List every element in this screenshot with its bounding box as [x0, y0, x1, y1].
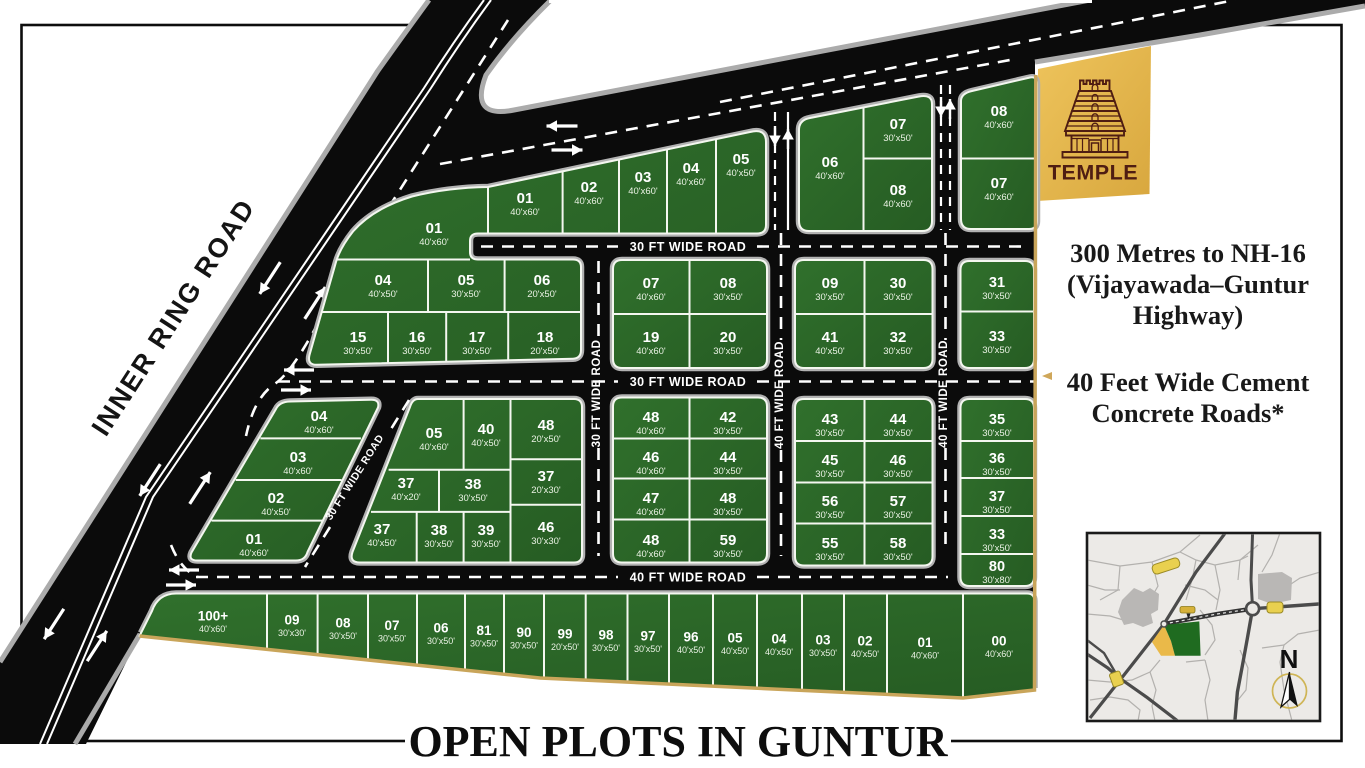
svg-text:58: 58 — [890, 535, 907, 552]
svg-text:08: 08 — [991, 103, 1008, 120]
svg-text:20'x50': 20'x50' — [551, 642, 579, 652]
svg-text:40'x50': 40'x50' — [367, 538, 397, 549]
svg-text:07: 07 — [643, 275, 660, 292]
svg-text:03: 03 — [290, 449, 307, 466]
svg-text:30'x50': 30'x50' — [982, 428, 1012, 439]
svg-text:30'x50': 30'x50' — [343, 346, 373, 357]
svg-text:20'x30': 20'x30' — [531, 485, 561, 496]
svg-text:35: 35 — [989, 412, 1005, 428]
svg-text:30'x50': 30'x50' — [378, 633, 406, 643]
svg-text:38: 38 — [465, 476, 482, 493]
svg-text:40'x60': 40'x60' — [883, 199, 913, 210]
svg-text:30'x50': 30'x50' — [982, 345, 1012, 356]
svg-text:09: 09 — [822, 275, 839, 292]
svg-text:30'x50': 30'x50' — [809, 648, 837, 658]
svg-text:40'x60': 40'x60' — [636, 426, 666, 437]
svg-text:02: 02 — [857, 633, 872, 648]
svg-text:01: 01 — [517, 190, 534, 207]
svg-text:04: 04 — [311, 408, 328, 425]
svg-text:15: 15 — [350, 329, 367, 346]
svg-text:30'x50': 30'x50' — [815, 428, 845, 439]
svg-text:30'x50': 30'x50' — [815, 552, 845, 563]
svg-text:40'x60': 40'x60' — [815, 171, 845, 182]
svg-text:40'x60': 40'x60' — [984, 120, 1014, 131]
svg-text:08: 08 — [335, 615, 351, 630]
svg-text:30'x50': 30'x50' — [458, 493, 488, 504]
svg-text:30'x50': 30'x50' — [471, 539, 501, 550]
svg-text:30'x50': 30'x50' — [883, 510, 913, 521]
svg-text:97: 97 — [640, 628, 655, 643]
svg-text:37: 37 — [374, 521, 391, 538]
svg-text:40'x60': 40'x60' — [636, 507, 666, 518]
svg-text:40'x60': 40'x60' — [283, 466, 313, 477]
svg-text:00: 00 — [991, 634, 1006, 649]
svg-text:30'x30': 30'x30' — [531, 536, 561, 547]
svg-text:40'x50': 40'x50' — [261, 507, 291, 518]
svg-text:20'x50': 20'x50' — [531, 434, 561, 445]
svg-text:30'x50': 30'x50' — [883, 552, 913, 563]
svg-text:31: 31 — [989, 275, 1005, 291]
svg-text:40'x60': 40'x60' — [628, 186, 658, 197]
svg-text:04: 04 — [683, 160, 700, 177]
svg-text:30 FT WIDE ROAD: 30 FT WIDE ROAD — [630, 240, 747, 254]
svg-text:40'x50': 40'x50' — [471, 438, 501, 449]
svg-text:40'x60': 40'x60' — [636, 549, 666, 560]
svg-text:40'x60': 40'x60' — [304, 425, 334, 436]
svg-text:30'x50': 30'x50' — [713, 549, 743, 560]
svg-text:98: 98 — [598, 627, 614, 642]
svg-text:30 FT WIDE ROAD: 30 FT WIDE ROAD — [630, 375, 747, 389]
svg-text:46: 46 — [890, 452, 907, 469]
svg-text:48: 48 — [720, 490, 737, 507]
svg-text:OPEN PLOTS IN GUNTUR: OPEN PLOTS IN GUNTUR — [408, 717, 948, 766]
svg-text:30'x50': 30'x50' — [470, 638, 498, 648]
svg-text:30'x50': 30'x50' — [329, 631, 357, 641]
svg-text:39: 39 — [478, 522, 495, 539]
svg-text:20'x50': 20'x50' — [530, 346, 560, 357]
svg-text:30'x50': 30'x50' — [713, 507, 743, 518]
svg-text:19: 19 — [643, 329, 660, 346]
svg-text:07: 07 — [890, 116, 907, 133]
svg-text:04: 04 — [771, 631, 787, 646]
svg-text:04: 04 — [375, 272, 392, 289]
svg-text:03: 03 — [635, 169, 652, 186]
svg-text:43: 43 — [822, 411, 839, 428]
svg-text:17: 17 — [469, 329, 486, 346]
svg-text:05: 05 — [458, 272, 475, 289]
svg-text:30'x50': 30'x50' — [713, 292, 743, 303]
svg-text:30'x50': 30'x50' — [883, 469, 913, 480]
svg-text:06: 06 — [433, 621, 449, 636]
svg-text:40'x60': 40'x60' — [984, 192, 1014, 203]
svg-text:57: 57 — [890, 493, 907, 510]
svg-text:20: 20 — [720, 329, 737, 346]
svg-text:40'x60': 40'x60' — [199, 624, 227, 634]
svg-text:30'x50': 30'x50' — [883, 428, 913, 439]
svg-text:TEMPLE: TEMPLE — [1048, 161, 1138, 185]
svg-text:44: 44 — [720, 449, 737, 466]
svg-text:30'x80': 30'x80' — [982, 575, 1012, 586]
svg-text:30'x50': 30'x50' — [883, 133, 913, 144]
svg-text:38: 38 — [431, 522, 448, 539]
svg-text:40'x60': 40'x60' — [510, 207, 540, 218]
svg-text:30'x50': 30'x50' — [883, 346, 913, 357]
svg-text:59: 59 — [720, 532, 737, 549]
svg-text:40'x50': 40'x50' — [677, 645, 705, 655]
svg-text:55: 55 — [822, 535, 839, 552]
svg-text:Concrete Roads*: Concrete Roads* — [1091, 398, 1284, 428]
svg-text:40'x50': 40'x50' — [726, 168, 756, 179]
svg-text:20'x50': 20'x50' — [527, 289, 557, 300]
svg-text:30 FT WIDE ROAD: 30 FT WIDE ROAD — [591, 340, 603, 448]
svg-text:80: 80 — [989, 559, 1005, 575]
svg-text:(Vijayawada–Guntur: (Vijayawada–Guntur — [1067, 269, 1309, 299]
svg-text:46: 46 — [643, 449, 660, 466]
svg-text:02: 02 — [581, 179, 598, 196]
svg-text:30'x50': 30'x50' — [451, 289, 481, 300]
svg-text:30'x50': 30'x50' — [462, 346, 492, 357]
svg-text:30'x50': 30'x50' — [713, 346, 743, 357]
svg-text:44: 44 — [890, 411, 907, 428]
svg-text:Highway): Highway) — [1133, 300, 1243, 330]
svg-text:45: 45 — [822, 452, 839, 469]
svg-text:33: 33 — [989, 329, 1005, 345]
svg-text:40'x60': 40'x60' — [574, 196, 604, 207]
svg-text:40 FT WIDE ROAD: 40 FT WIDE ROAD — [774, 341, 786, 449]
svg-text:30'x50': 30'x50' — [883, 292, 913, 303]
svg-text:40 FT WIDE ROAD: 40 FT WIDE ROAD — [938, 340, 950, 448]
svg-text:40'x60': 40'x60' — [636, 292, 666, 303]
svg-text:30'x50': 30'x50' — [424, 539, 454, 550]
svg-text:08: 08 — [890, 182, 907, 199]
svg-text:40'x60': 40'x60' — [636, 346, 666, 357]
svg-text:30: 30 — [890, 275, 907, 292]
svg-text:40'x20': 40'x20' — [391, 492, 421, 503]
svg-text:N: N — [1280, 644, 1299, 674]
svg-text:30'x50': 30'x50' — [634, 644, 662, 654]
svg-text:06: 06 — [822, 154, 839, 171]
svg-text:40'x60': 40'x60' — [419, 442, 449, 453]
svg-text:05: 05 — [733, 151, 750, 168]
svg-text:40: 40 — [478, 421, 495, 438]
svg-text:05: 05 — [727, 630, 743, 645]
svg-text:16: 16 — [409, 329, 426, 346]
svg-text:96: 96 — [683, 629, 699, 644]
svg-text:42: 42 — [720, 409, 737, 426]
svg-text:01: 01 — [917, 635, 933, 650]
svg-text:47: 47 — [643, 490, 660, 507]
svg-text:30'x50': 30'x50' — [982, 505, 1012, 516]
svg-text:40'x50': 40'x50' — [368, 289, 398, 300]
svg-text:81: 81 — [476, 623, 492, 638]
svg-text:40'x50': 40'x50' — [815, 346, 845, 357]
svg-text:41: 41 — [822, 329, 839, 346]
svg-text:99: 99 — [557, 626, 572, 641]
svg-text:48: 48 — [538, 417, 555, 434]
svg-text:06: 06 — [534, 272, 551, 289]
svg-text:30'x50': 30'x50' — [982, 291, 1012, 302]
svg-text:30'x50': 30'x50' — [982, 467, 1012, 478]
svg-text:30'x50': 30'x50' — [402, 346, 432, 357]
svg-text:56: 56 — [822, 493, 839, 510]
svg-text:40'x60': 40'x60' — [911, 650, 939, 660]
svg-text:36: 36 — [989, 451, 1005, 467]
svg-text:30'x50': 30'x50' — [713, 466, 743, 477]
svg-text:40'x60': 40'x60' — [239, 548, 269, 559]
svg-text:40 FT WIDE ROAD: 40 FT WIDE ROAD — [630, 571, 747, 585]
svg-text:40'x50': 40'x50' — [851, 649, 879, 659]
svg-text:100+: 100+ — [198, 609, 229, 624]
svg-text:30'x50': 30'x50' — [815, 469, 845, 480]
svg-text:37: 37 — [398, 475, 415, 492]
svg-text:90: 90 — [516, 625, 531, 640]
svg-text:09: 09 — [284, 613, 299, 628]
svg-text:08: 08 — [720, 275, 737, 292]
svg-text:01: 01 — [426, 220, 443, 237]
svg-text:05: 05 — [426, 425, 443, 442]
svg-text:03: 03 — [815, 632, 831, 647]
svg-text:40'x60': 40'x60' — [636, 466, 666, 477]
svg-text:40 Feet Wide Cement: 40 Feet Wide Cement — [1067, 367, 1310, 397]
svg-text:48: 48 — [643, 409, 660, 426]
svg-text:40'x50': 40'x50' — [721, 646, 749, 656]
svg-text:01: 01 — [246, 531, 263, 548]
svg-text:30'x50': 30'x50' — [510, 640, 538, 650]
svg-text:32: 32 — [890, 329, 907, 346]
svg-text:46: 46 — [538, 519, 555, 536]
svg-text:30'x50': 30'x50' — [427, 636, 455, 646]
svg-text:40'x60': 40'x60' — [419, 237, 449, 248]
svg-text:40'x50': 40'x50' — [765, 647, 793, 657]
svg-text:30'x50': 30'x50' — [982, 543, 1012, 554]
svg-text:37: 37 — [989, 489, 1005, 505]
svg-text:30'x30': 30'x30' — [278, 628, 306, 638]
svg-text:02: 02 — [268, 490, 285, 507]
svg-text:300 Metres to NH-16: 300 Metres to NH-16 — [1070, 238, 1306, 268]
svg-text:40'x60': 40'x60' — [985, 649, 1013, 659]
svg-text:33: 33 — [989, 527, 1005, 543]
svg-text:48: 48 — [643, 532, 660, 549]
svg-text:30'x50': 30'x50' — [815, 510, 845, 521]
svg-text:07: 07 — [384, 618, 399, 633]
svg-text:30'x50': 30'x50' — [815, 292, 845, 303]
svg-text:30'x50': 30'x50' — [592, 643, 620, 653]
svg-text:37: 37 — [538, 468, 555, 485]
svg-text:07: 07 — [991, 175, 1008, 192]
svg-text:18: 18 — [537, 329, 554, 346]
svg-text:30'x50': 30'x50' — [713, 426, 743, 437]
svg-text:40'x60': 40'x60' — [676, 177, 706, 188]
